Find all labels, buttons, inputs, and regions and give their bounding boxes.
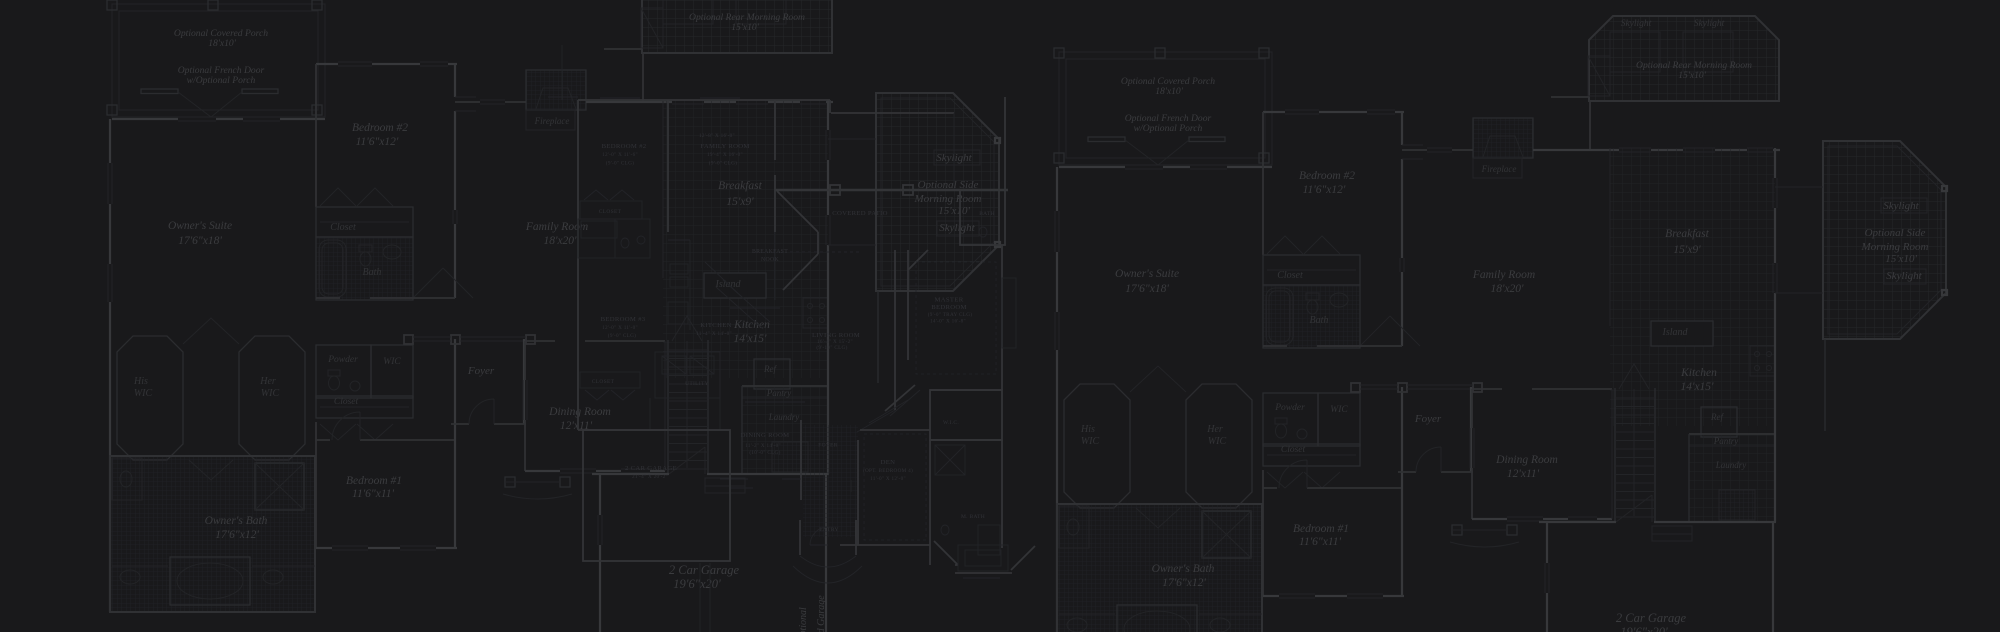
svg-text:BEDROOM: BEDROOM	[931, 304, 967, 311]
svg-text:BEDROOM #2: BEDROOM #2	[602, 143, 647, 150]
svg-text:11'-4" X 14'-0": 11'-4" X 14'-0"	[696, 331, 732, 337]
svg-text:11'-2" X 14'-0": 11'-2" X 14'-0"	[745, 443, 781, 449]
svg-text:(10'-0" CLG): (10'-0" CLG)	[749, 449, 780, 456]
svg-text:UTILITY: UTILITY	[685, 381, 709, 387]
svg-text:FOYER: FOYER	[818, 443, 838, 449]
svg-text:19'-4" X 16'-0": 19'-4" X 16'-0"	[707, 152, 743, 158]
svg-text:CLOSET: CLOSET	[592, 379, 615, 385]
svg-text:COVERED PATIO: COVERED PATIO	[832, 210, 887, 217]
svg-text:M. BATH: M. BATH	[961, 514, 985, 520]
svg-text:2 CAR GARAGE: 2 CAR GARAGE	[625, 465, 677, 472]
svg-text:DEN: DEN	[881, 459, 896, 466]
svg-text:LIVING ROOM: LIVING ROOM	[812, 332, 860, 339]
svg-text:(9'-0" CLG): (9'-0" CLG)	[606, 160, 634, 167]
svg-text:(9'-10" CLG): (9'-10" CLG)	[816, 344, 847, 351]
svg-text:11'-0" X 12'-0": 11'-0" X 12'-0"	[870, 476, 906, 482]
svg-text:(9'-0" TRAY CLG): (9'-0" TRAY CLG)	[928, 311, 973, 318]
svg-text:MASTER: MASTER	[935, 297, 964, 304]
svg-text:BEDROOM #3: BEDROOM #3	[601, 316, 646, 323]
svg-text:BREAKFAST: BREAKFAST	[752, 249, 788, 255]
svg-text:BATH: BATH	[979, 211, 995, 217]
svg-text:(OPT. BEDROOM 4): (OPT. BEDROOM 4)	[863, 467, 913, 474]
svg-text:CLOSET: CLOSET	[599, 209, 622, 215]
svg-text:12'-0" X 11'-0": 12'-0" X 11'-0"	[602, 325, 638, 331]
svg-text:12'-0" X 11'-6": 12'-0" X 11'-6"	[602, 152, 638, 158]
svg-text:FAMILY ROOM: FAMILY ROOM	[700, 143, 749, 150]
svg-text:(9'-0" CLG): (9'-0" CLG)	[709, 160, 737, 167]
svg-text:W.I.C.: W.I.C.	[943, 420, 959, 426]
svg-text:12'-8" X 16'-0": 12'-8" X 16'-0"	[699, 133, 735, 139]
svg-text:(9'-0" CLG): (9'-0" CLG)	[608, 332, 636, 339]
svg-text:21'-4" X 20'-2": 21'-4" X 20'-2"	[632, 474, 668, 480]
svg-text:DINING ROOM: DINING ROOM	[741, 432, 790, 439]
svg-text:KITCHEN: KITCHEN	[700, 322, 731, 329]
svg-text:NOOK: NOOK	[761, 257, 779, 263]
svg-text:14'-0" X 16'-8": 14'-0" X 16'-8"	[930, 319, 966, 325]
